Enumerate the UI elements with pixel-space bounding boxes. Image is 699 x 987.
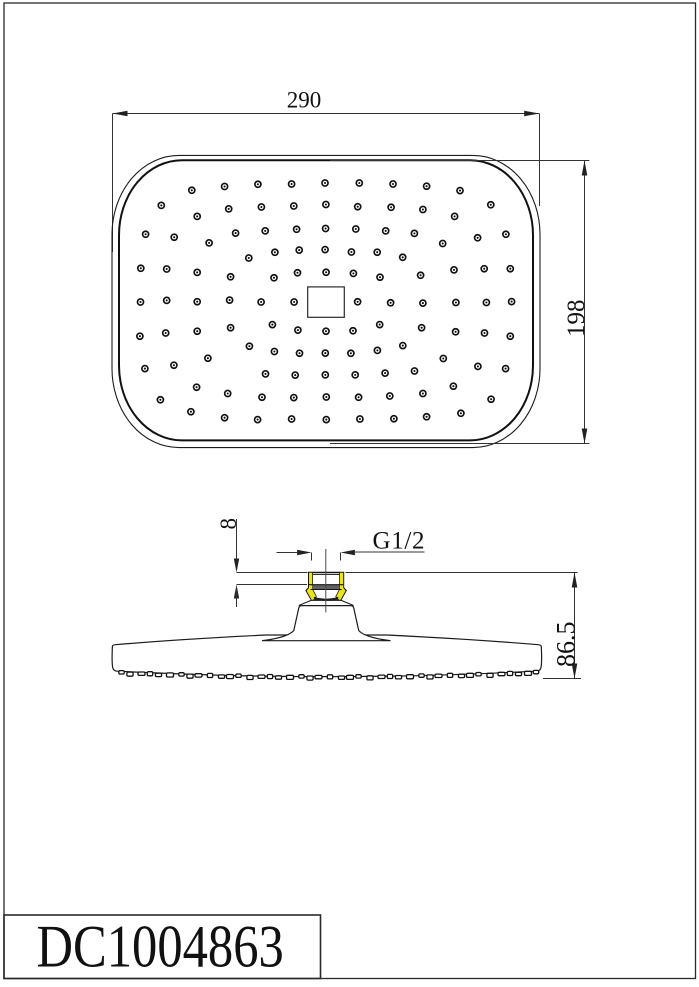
svg-text:8: 8 [216,518,241,530]
svg-text:DC1004863: DC1004863 [37,915,284,981]
svg-text:198: 198 [563,300,590,338]
svg-text:290: 290 [287,88,322,113]
svg-text:G1/2: G1/2 [373,528,425,555]
svg-text:86.5: 86.5 [552,622,581,668]
